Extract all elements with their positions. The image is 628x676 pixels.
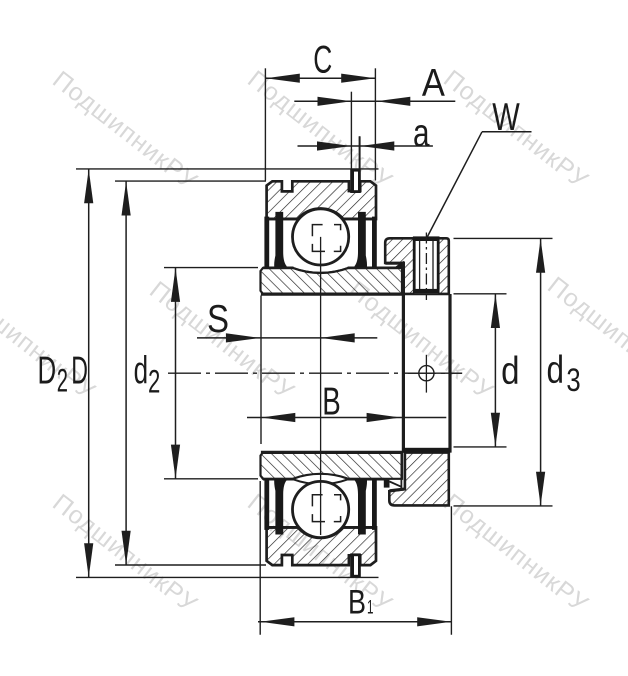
svg-text:d: d bbox=[134, 350, 149, 393]
svg-text:B: B bbox=[348, 584, 366, 622]
svg-text:B: B bbox=[322, 380, 341, 423]
svg-text:D: D bbox=[71, 350, 88, 393]
svg-text:C: C bbox=[313, 39, 332, 82]
svg-text:2: 2 bbox=[148, 363, 160, 399]
svg-text:A: A bbox=[422, 62, 445, 105]
svg-text:D: D bbox=[38, 350, 57, 393]
svg-text:3: 3 bbox=[566, 362, 580, 398]
svg-text:S: S bbox=[207, 298, 229, 341]
svg-text:d: d bbox=[547, 349, 565, 392]
svg-text:2: 2 bbox=[57, 362, 68, 398]
svg-text:1: 1 bbox=[367, 598, 374, 619]
svg-text:d: d bbox=[501, 350, 519, 393]
svg-text:a: a bbox=[413, 112, 430, 155]
